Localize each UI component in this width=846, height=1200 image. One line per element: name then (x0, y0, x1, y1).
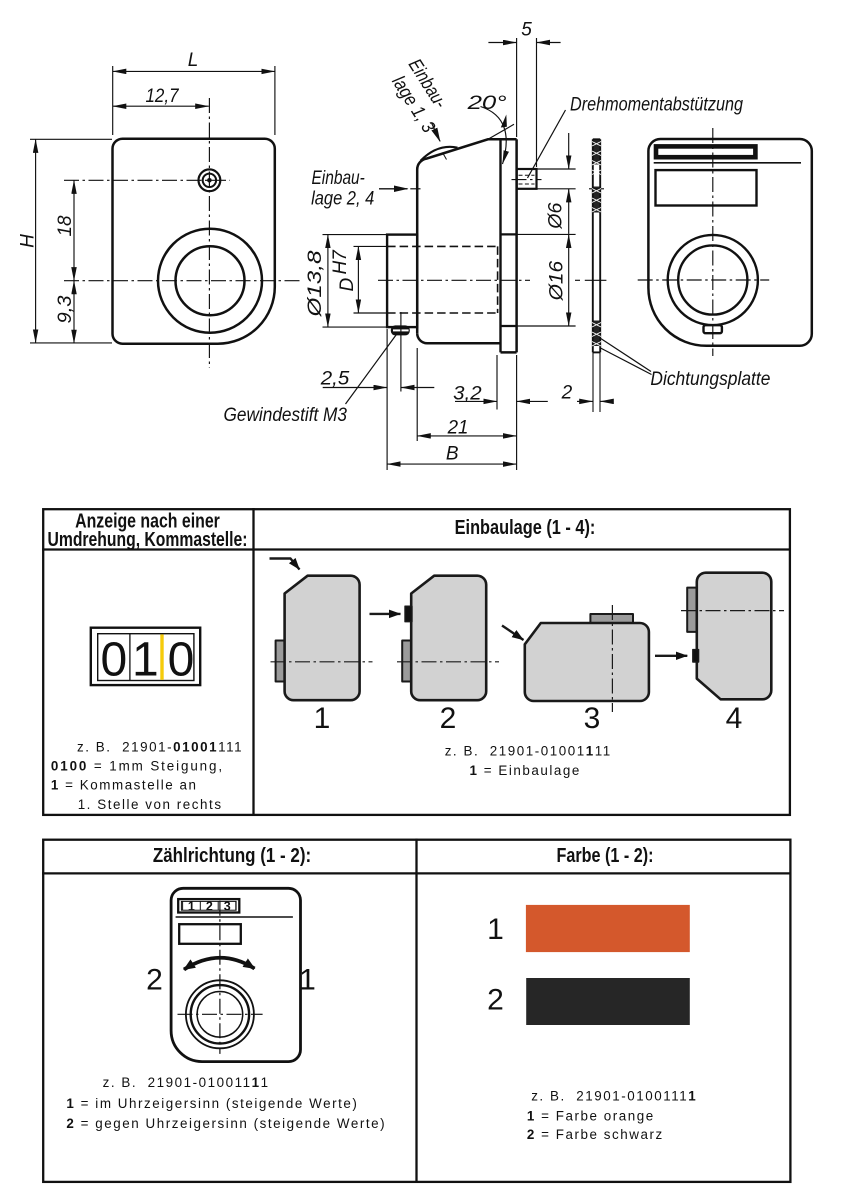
svg-text:Einbau-: Einbau- (312, 168, 365, 189)
svg-text:Ø13,8: Ø13,8 (305, 250, 326, 318)
svg-text:1: 1 (487, 913, 504, 946)
svg-text:1: 1 (299, 964, 316, 997)
svg-text:21: 21 (447, 418, 469, 439)
svg-text:0: 0 (100, 634, 127, 687)
svg-text:Einbaulage (1 - 4):: Einbaulage (1 - 4): (455, 517, 596, 539)
svg-text:2 = Farbe schwarz: 2 = Farbe schwarz (527, 1127, 664, 1142)
svg-text:2: 2 (146, 964, 163, 997)
svg-text:D: D (337, 278, 358, 292)
svg-text:3: 3 (224, 899, 231, 913)
svg-text:Gewindestift M3: Gewindestift M3 (224, 405, 348, 426)
svg-text:z. B. 21901-01001111: z. B. 21901-01001111 (77, 740, 243, 755)
svg-text:9,3: 9,3 (55, 295, 76, 323)
svg-text:z. B. 21901-01001111: z. B. 21901-01001111 (103, 1075, 270, 1090)
svg-text:2: 2 (487, 984, 504, 1017)
svg-text:H: H (18, 234, 39, 248)
svg-text:2: 2 (561, 383, 573, 404)
svg-text:1: 1 (188, 899, 195, 913)
svg-text:H7: H7 (330, 249, 351, 275)
svg-text:Ø16: Ø16 (547, 260, 568, 301)
svg-text:1: 1 (314, 702, 331, 735)
svg-text:2,5: 2,5 (320, 369, 350, 390)
svg-text:1 = Farbe orange: 1 = Farbe orange (527, 1108, 655, 1123)
svg-text:Dichtungsplatte: Dichtungsplatte (650, 369, 770, 390)
svg-text:18: 18 (55, 215, 76, 236)
svg-text:1 = Kommastelle an: 1 = Kommastelle an (51, 778, 198, 793)
svg-text:Ø6: Ø6 (546, 202, 567, 229)
svg-text:2: 2 (440, 702, 457, 735)
svg-text:2 = gegen Uhrzeigersinn (steig: 2 = gegen Uhrzeigersinn (steigende Werte… (66, 1116, 386, 1131)
svg-text:1: 1 (132, 634, 159, 687)
svg-text:4: 4 (726, 702, 743, 735)
svg-text:5: 5 (521, 20, 532, 41)
svg-text:3,2: 3,2 (453, 384, 482, 405)
svg-text:1 = im Uhrzeigersinn (steigend: 1 = im Uhrzeigersinn (steigende Werte) (66, 1096, 358, 1111)
svg-text:0: 0 (168, 634, 195, 687)
svg-text:0100 = 1mm Steigung,: 0100 = 1mm Steigung, (51, 759, 224, 774)
svg-text:z. B. 21901-01001111: z. B. 21901-01001111 (445, 744, 612, 759)
svg-text:1. Stelle von rechts: 1. Stelle von rechts (78, 797, 223, 812)
svg-text:L: L (188, 50, 199, 71)
svg-text:Umdrehung, Kommastelle:: Umdrehung, Kommastelle: (48, 529, 248, 551)
svg-text:1 = Einbaulage: 1 = Einbaulage (470, 763, 581, 778)
svg-text:lage 2, 4: lage 2, 4 (311, 188, 374, 209)
svg-text:3: 3 (584, 702, 601, 735)
svg-text:20°: 20° (466, 93, 507, 114)
svg-text:2: 2 (206, 899, 213, 913)
svg-text:Zählrichtung (1 - 2):: Zählrichtung (1 - 2): (153, 845, 311, 867)
svg-text:Farbe (1 - 2):: Farbe (1 - 2): (557, 845, 654, 867)
svg-text:12,7: 12,7 (146, 86, 180, 107)
svg-text:B: B (446, 444, 459, 465)
svg-text:z. B. 21901-01001111: z. B. 21901-01001111 (531, 1089, 697, 1104)
svg-text:Drehmomentabstützung: Drehmomentabstützung (570, 95, 743, 116)
